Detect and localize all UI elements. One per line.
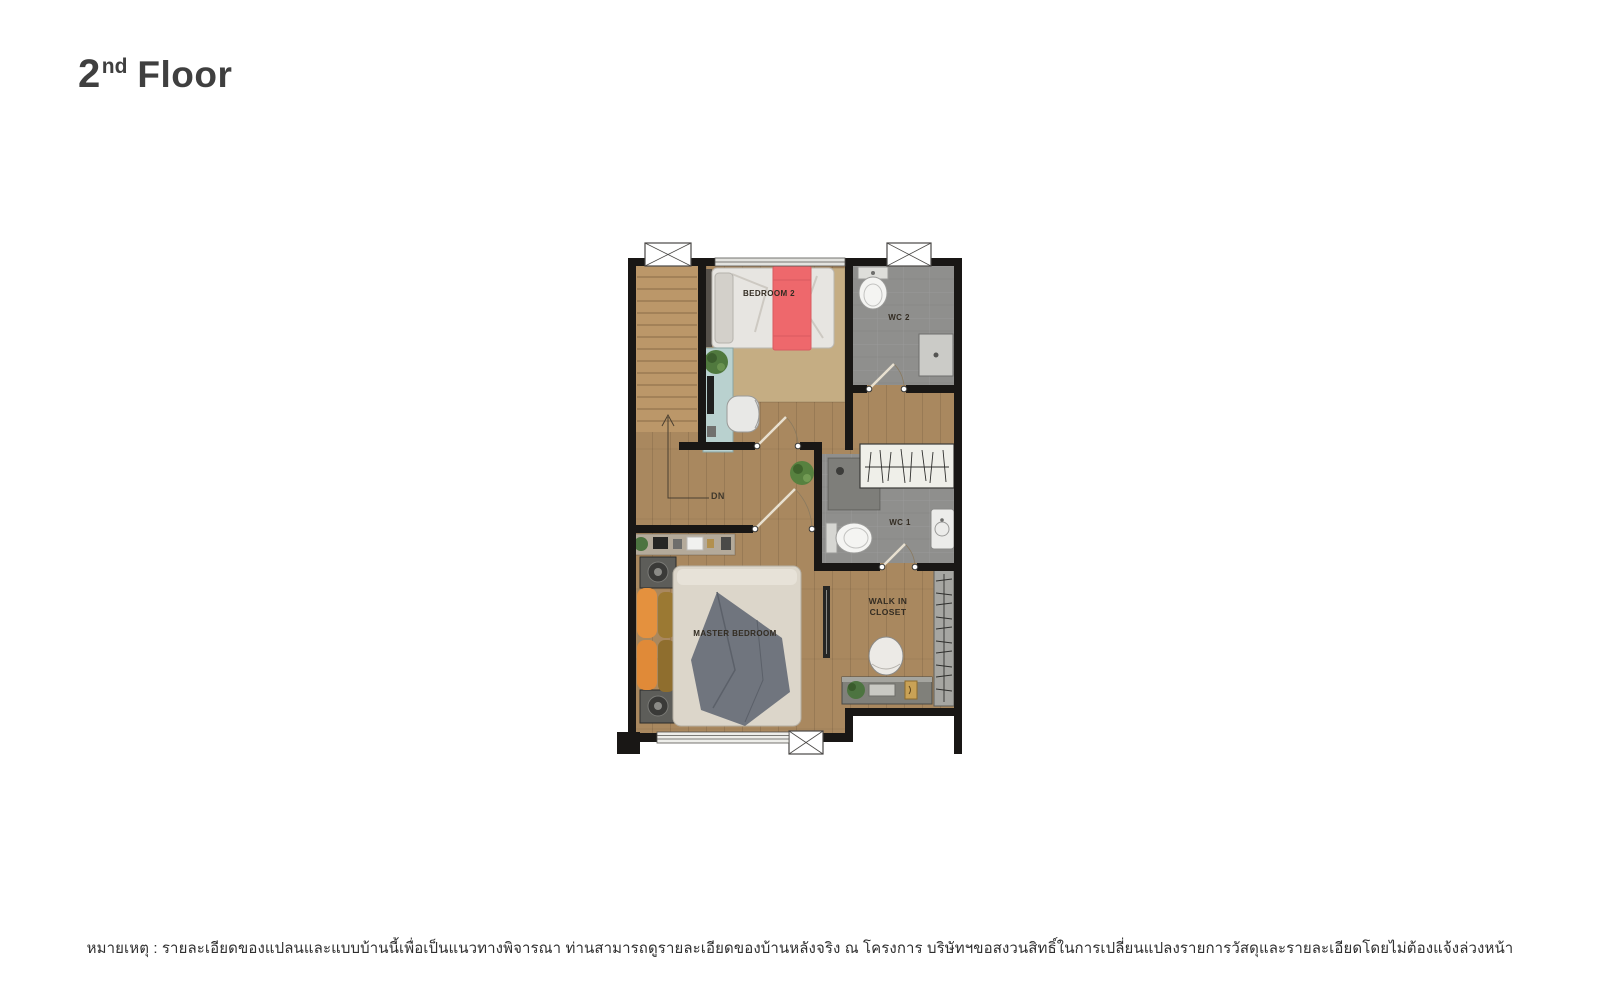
hallway-plant xyxy=(790,461,814,485)
wc2-toilet xyxy=(858,267,888,309)
bedroom2-top-window xyxy=(715,258,845,266)
bedroom2-chair xyxy=(727,396,759,432)
page-title: 2ndFloor xyxy=(78,52,232,97)
master-bed xyxy=(673,566,801,726)
walkin-mirror xyxy=(823,586,830,658)
floor-ordinal: nd xyxy=(102,55,128,78)
floor-word: Floor xyxy=(137,54,232,95)
room-label-bedroom2: BEDROOM 2 xyxy=(709,288,829,299)
master-long-window xyxy=(657,732,789,743)
master-speaker-top xyxy=(640,557,676,588)
room-label-master-bedroom: MASTER BEDROOM xyxy=(675,628,795,639)
outside-area xyxy=(853,716,962,755)
staircase xyxy=(636,266,698,432)
walkin-chair xyxy=(869,637,903,675)
room-label-walk-in-closet: WALK IN CLOSET xyxy=(851,596,925,618)
wc1-toilet xyxy=(826,523,872,553)
wc1-sink xyxy=(931,509,954,549)
room-label-wc1: WC 1 xyxy=(870,517,930,528)
floor-plan: BEDROOM 2 WC 2 WC 1 MASTER BEDROOM WALK … xyxy=(617,240,962,755)
window-top-right xyxy=(887,243,931,266)
walkin-wardrobe xyxy=(934,570,954,706)
bedroom2-bed xyxy=(706,266,834,350)
page: 2ndFloor xyxy=(0,0,1600,1000)
master-speaker-bottom xyxy=(640,690,676,723)
stairs-down-label: DN xyxy=(711,491,745,502)
window-bottom xyxy=(789,731,823,754)
wc1-closet xyxy=(860,444,954,488)
footer-disclaimer: หมายเหตุ : รายละเอียดของแปลนและแบบบ้านนี… xyxy=(0,936,1600,960)
window-top-left xyxy=(645,243,691,266)
wc2-shower xyxy=(919,334,953,376)
room-label-wc2: WC 2 xyxy=(869,312,929,323)
bedroom2-plant xyxy=(704,350,728,374)
floor-number: 2 xyxy=(78,52,101,96)
walkin-vanity xyxy=(842,677,932,704)
master-dresser xyxy=(633,534,735,555)
